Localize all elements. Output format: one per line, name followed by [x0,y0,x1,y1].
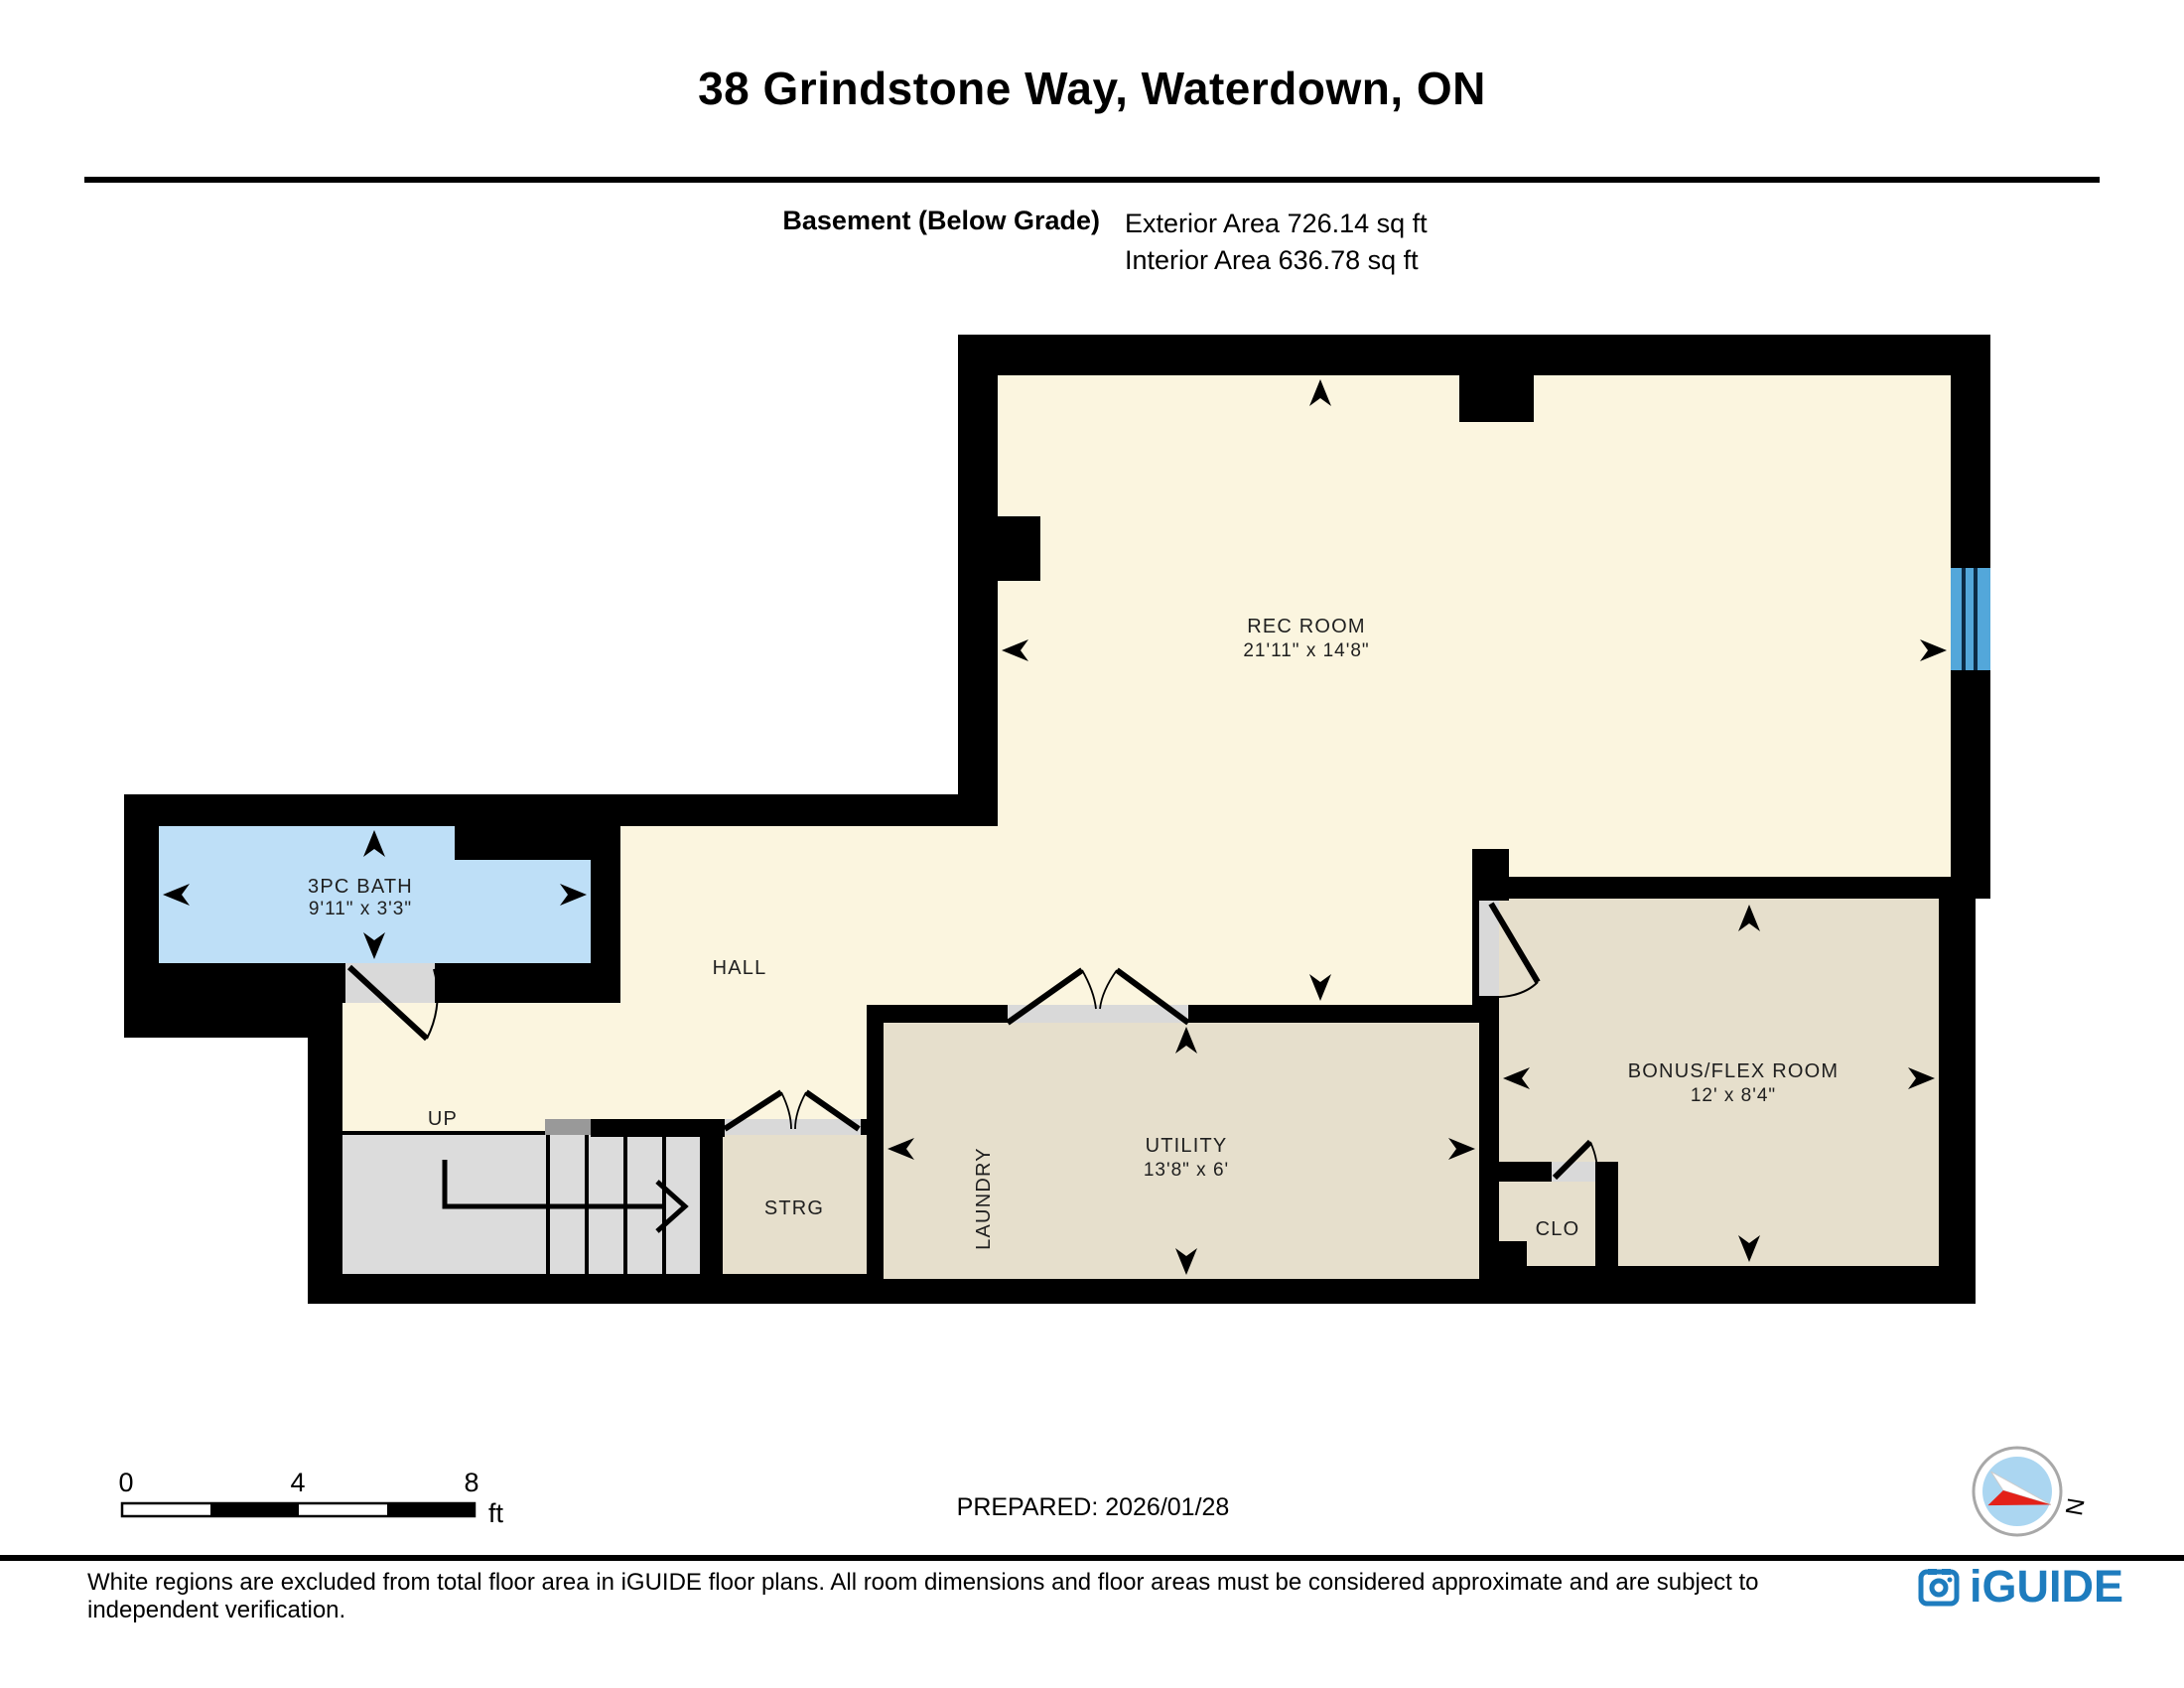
door-opening-utility [1008,1005,1188,1023]
room-fill-rec [998,375,1951,877]
room-fill-hall-mid [620,826,998,1005]
room-dims-bonus: 12' x 8'4" [1691,1085,1776,1106]
window-icon [1951,568,1990,670]
room-dims-bath: 9'11" x 3'3" [309,899,412,919]
door-opening-bath [345,963,435,1003]
room-label-up: UP [428,1108,458,1130]
room-label-laundry: LAUNDRY [973,1147,995,1250]
compass-north-label: N [2060,1495,2090,1517]
room-label-hall: HALL [713,957,767,979]
room-fill-bath-lower [455,860,591,963]
footer-divider [0,1555,2184,1561]
room-label-bath: 3PC BATH [308,876,413,898]
wall-closet-top [1499,1162,1552,1182]
wall-closet-step [1499,1241,1527,1266]
floor-plan-drawing: REC ROOM 21'11" x 14'8" 3PC BATH 9'11" x… [0,0,2184,1688]
door-opening-storage [725,1119,861,1135]
scale-unit: ft [488,1498,504,1528]
scale-tick-4: 4 [290,1468,305,1497]
wall-utility-left [867,1005,884,1279]
room-dims-rec: 21'11" x 14'8" [1243,640,1369,661]
scale-tick-0: 0 [118,1468,133,1497]
wall-pillar-bonus [1472,849,1509,901]
room-label-rec: REC ROOM [1247,616,1366,637]
room-label-bonus: BONUS/FLEX ROOM [1628,1060,1839,1082]
stair-top-line [342,1131,545,1135]
brand-logo: iGUIDE [1918,1561,2123,1613]
wall-notch-left [998,516,1040,581]
room-dims-utility: 13'8" x 6' [1144,1160,1229,1181]
room-label-storage: STRG [764,1197,824,1219]
floor-plan-page: 38 Grindstone Way, Waterdown, ON Basemen… [0,0,2184,1688]
room-label-utility: UTILITY [1146,1135,1228,1157]
scale-tick-8: 8 [464,1468,478,1497]
wall-notch-top [1459,375,1534,422]
compass-icon: N [1974,1448,2089,1535]
stair-landing-block [545,1119,591,1135]
brand-camera-icon [1918,1566,1962,1608]
wall-stair-top [591,1119,725,1137]
scale-bar: 0 4 8 ft [118,1468,503,1528]
room-label-closet: CLO [1536,1218,1580,1240]
footer-disclaimer: White regions are excluded from total fl… [87,1569,1825,1624]
room-fill-bonus [1499,899,1939,1266]
room-fill-hall-upper [998,877,1472,1005]
prepared-date: PREPARED: 2026/01/28 [957,1493,1230,1521]
wall-closet-right [1595,1162,1618,1266]
brand-name: iGUIDE [1970,1561,2123,1613]
